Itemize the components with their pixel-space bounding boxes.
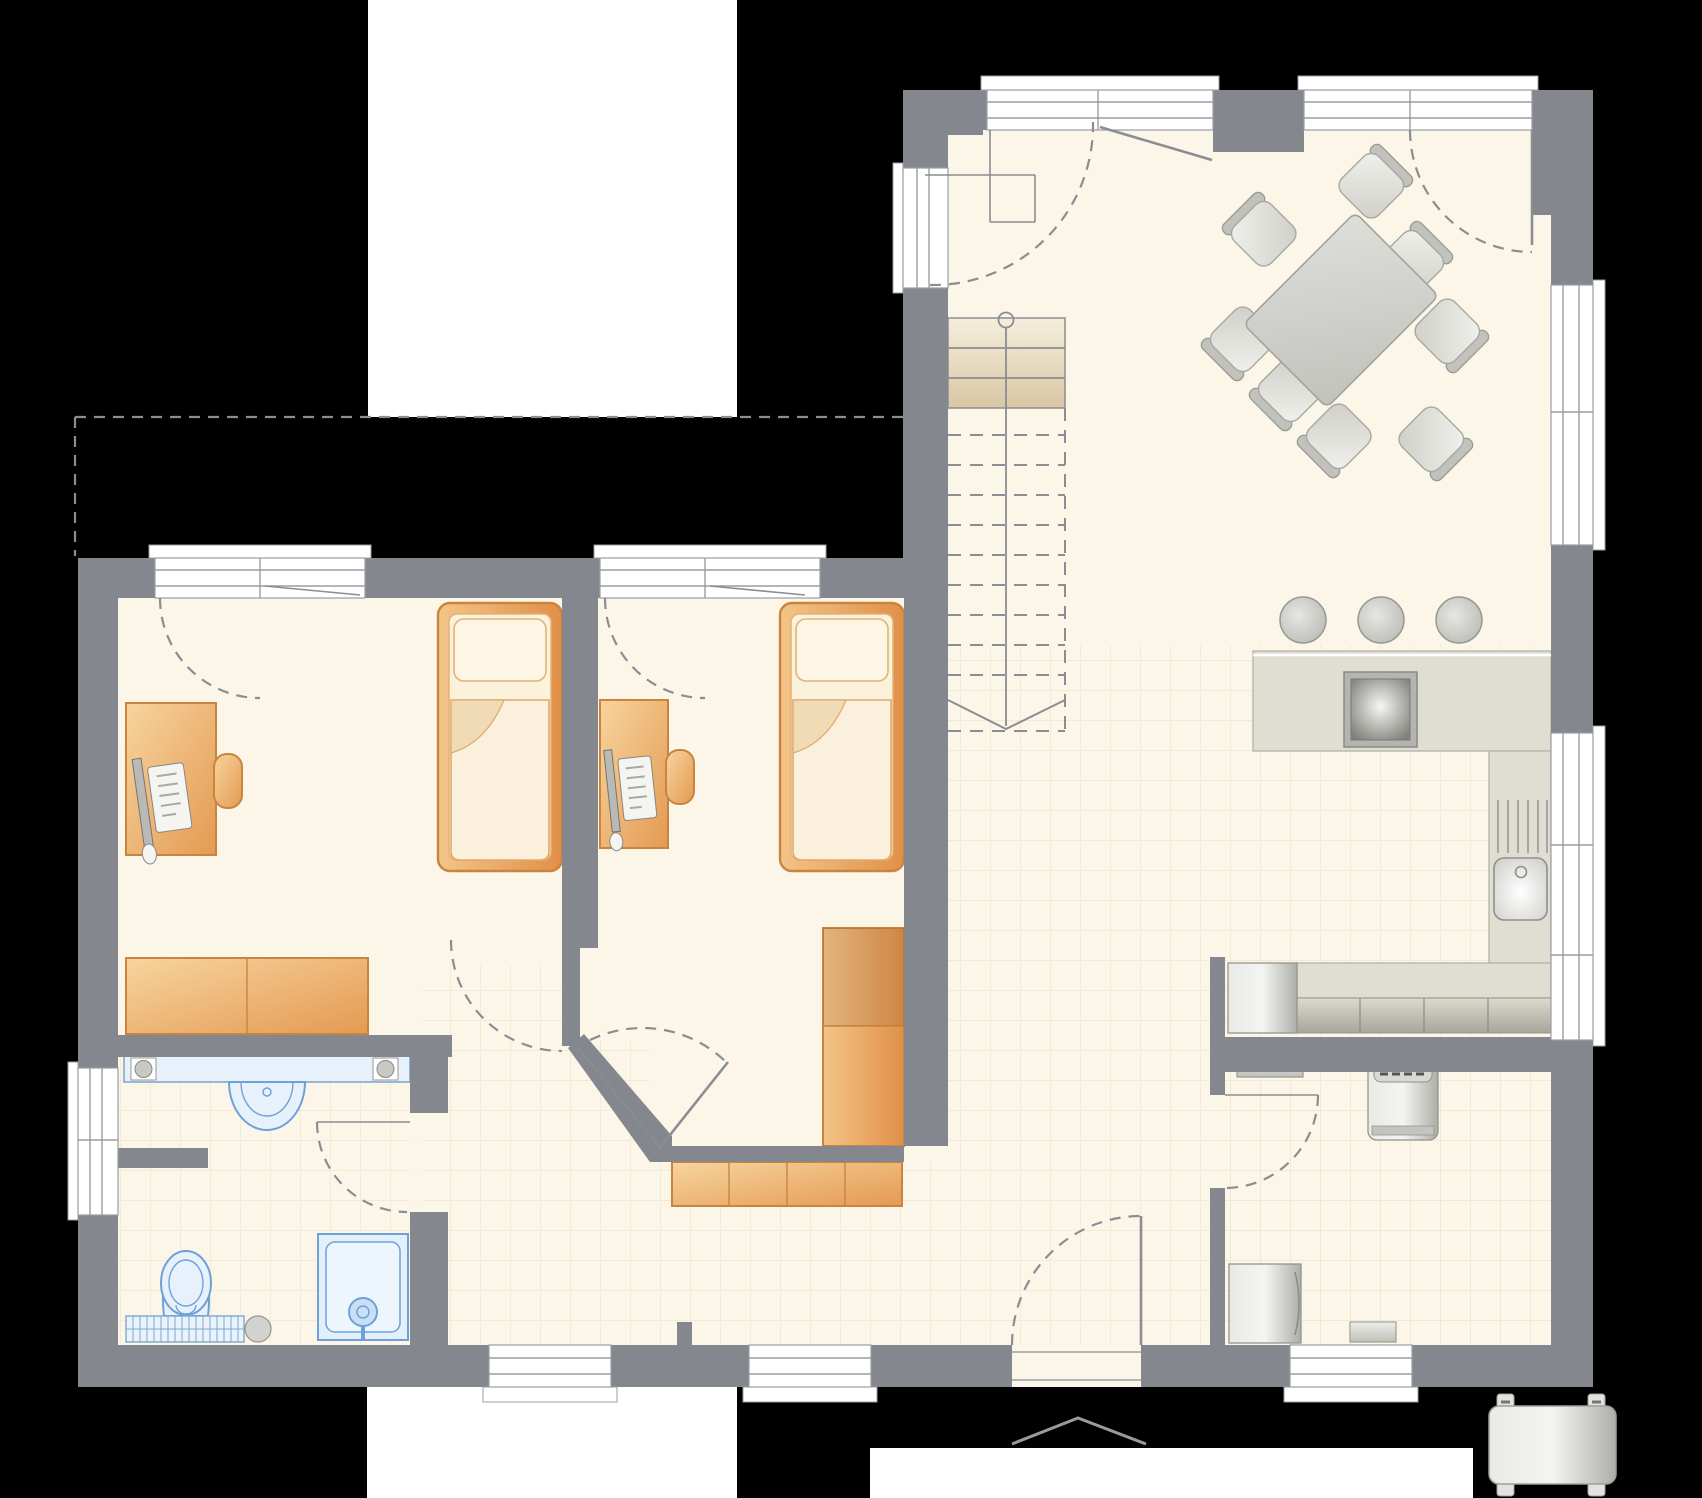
kitchen-east-counter	[1489, 751, 1551, 963]
freezer	[1229, 1264, 1301, 1343]
window-sill	[743, 1387, 877, 1402]
window-south-corridor	[749, 1345, 871, 1387]
bar-stool	[1280, 597, 1326, 643]
window-sill	[1593, 726, 1605, 1046]
wardrobe	[823, 928, 904, 1146]
floor-plan-page	[0, 0, 1702, 1498]
wall-bedroom-divider	[562, 598, 598, 948]
laundry-basket	[245, 1316, 271, 1342]
single-bed	[780, 603, 904, 871]
wall-bathroom-stub	[118, 1148, 208, 1168]
car-body	[1489, 1406, 1616, 1484]
driveway-strip	[870, 1448, 1473, 1498]
wall-north-pier	[1213, 130, 1304, 152]
parked-car	[1489, 1394, 1616, 1496]
desk-with-computer	[600, 700, 668, 851]
window-sill	[483, 1387, 617, 1402]
wall-entrance-pier	[677, 1322, 692, 1345]
vanity-fixture	[131, 1058, 156, 1080]
window-north-right	[1304, 90, 1532, 130]
sideboard	[126, 958, 368, 1034]
shower-drain-icon	[349, 1298, 377, 1326]
window-bathroom	[78, 1068, 118, 1215]
window-sill	[68, 1062, 78, 1220]
wall-bathroom-north	[118, 1035, 452, 1057]
wall-bathroom-east	[410, 1212, 448, 1345]
patio-block	[367, 1387, 737, 1498]
wall-bedroom-divider-stub	[562, 948, 580, 1046]
bar-stool	[1436, 597, 1482, 643]
wall-bathroom-east	[410, 1055, 448, 1113]
bar-stool	[1358, 597, 1404, 643]
wall-kitchen-south	[1210, 1037, 1551, 1072]
window-north-left	[987, 90, 1213, 130]
desk-with-computer	[126, 703, 216, 865]
window-sill	[594, 545, 826, 558]
wall-utility-west	[1210, 1188, 1225, 1345]
window-sill	[149, 545, 371, 558]
kitchen-cabinet-fronts	[1297, 998, 1551, 1033]
window-east-upper	[1551, 285, 1593, 545]
entrance-hall	[672, 1162, 902, 1206]
window-sill	[893, 163, 903, 293]
window-sill	[1298, 76, 1538, 90]
utility-bench	[1350, 1322, 1396, 1342]
carport-dashed-outline	[75, 417, 903, 556]
tile-floor-hall	[423, 965, 562, 1040]
wall-stair-hall	[904, 598, 948, 1146]
window-sill	[1284, 1387, 1418, 1402]
window-sill	[981, 76, 1219, 90]
keyboard-icon	[618, 756, 657, 821]
kitchen-south-counter	[1297, 963, 1551, 998]
window-south-hall	[489, 1345, 611, 1387]
garage-block	[368, 0, 737, 417]
window-south-utility	[1290, 1345, 1412, 1387]
shower	[318, 1234, 408, 1340]
desk-chair	[666, 750, 694, 804]
porch-canopy	[1012, 1418, 1146, 1444]
french-window-bedroom-middle	[600, 558, 820, 598]
window-sill	[1593, 280, 1605, 550]
wall-west	[78, 558, 118, 1386]
window-west-living	[903, 168, 948, 288]
kitchen-sink	[1494, 858, 1547, 920]
desk-chair	[214, 754, 242, 808]
radiator	[126, 1316, 271, 1342]
vanity-fixture	[373, 1058, 398, 1080]
vanity-counter	[124, 1056, 410, 1082]
cooktop	[1351, 679, 1410, 740]
oven-block	[1228, 963, 1297, 1033]
floor-plan-drawing	[0, 0, 1702, 1498]
window-east-lower	[1551, 733, 1593, 1040]
single-bed	[438, 603, 562, 871]
wall-corridor-north	[650, 1146, 904, 1162]
wall-utility-west	[1210, 957, 1225, 1095]
